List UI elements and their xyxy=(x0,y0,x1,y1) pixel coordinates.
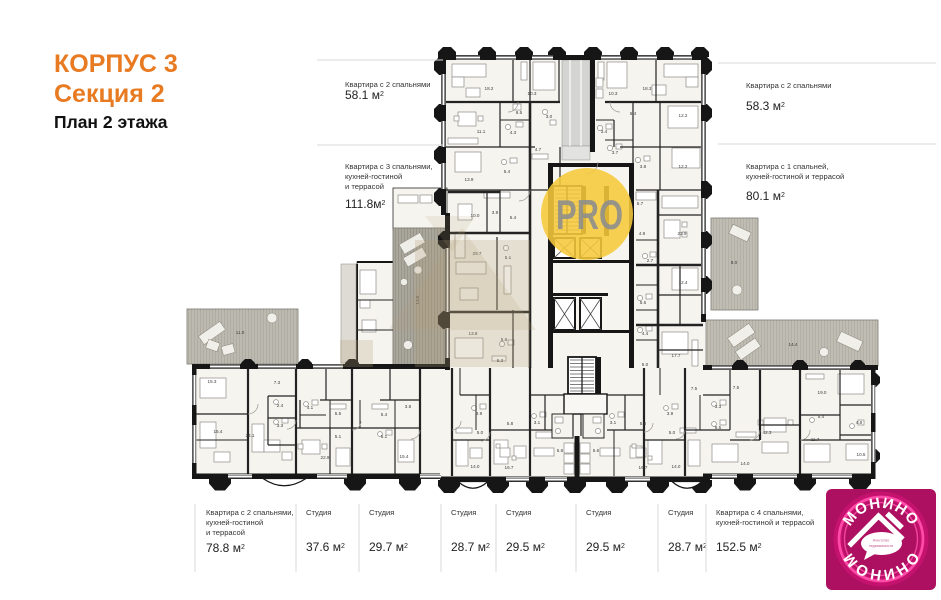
svg-text:80.1 м2: 80.1 м2 xyxy=(746,189,785,203)
svg-text:кухней-гостиной и террасой: кухней-гостиной и террасой xyxy=(716,518,814,527)
svg-text:5.8: 5.8 xyxy=(640,421,647,426)
svg-text:3.1: 3.1 xyxy=(534,420,541,425)
svg-text:5.0: 5.0 xyxy=(477,430,484,435)
svg-text:15.3: 15.3 xyxy=(208,379,217,384)
svg-text:и террасой: и террасой xyxy=(206,528,245,537)
svg-text:5.1: 5.1 xyxy=(335,434,342,439)
svg-text:недвижимости: недвижимости xyxy=(869,544,893,548)
svg-text:78.8 м2: 78.8 м2 xyxy=(206,541,245,555)
svg-text:17.7: 17.7 xyxy=(672,353,681,358)
svg-text:14.0: 14.0 xyxy=(672,464,681,469)
svg-text:Студия: Студия xyxy=(306,508,331,517)
svg-text:5.1: 5.1 xyxy=(381,434,388,439)
svg-text:Студия: Студия xyxy=(451,508,476,517)
svg-text:14.4: 14.4 xyxy=(789,342,798,347)
svg-text:4.8: 4.8 xyxy=(856,420,863,425)
svg-text:5.4: 5.4 xyxy=(510,215,517,220)
svg-text:6.5: 6.5 xyxy=(715,425,722,430)
svg-text:3.7: 3.7 xyxy=(612,150,619,155)
svg-text:10.3: 10.3 xyxy=(528,91,537,96)
svg-text:29.7 м2: 29.7 м2 xyxy=(369,540,408,554)
svg-text:14.0: 14.0 xyxy=(741,461,750,466)
svg-text:Студия: Студия xyxy=(506,508,531,517)
svg-text:3.8: 3.8 xyxy=(640,164,647,169)
svg-text:37.6 м2: 37.6 м2 xyxy=(306,540,345,554)
svg-text:10.5: 10.5 xyxy=(857,452,866,457)
svg-text:5.0: 5.0 xyxy=(642,362,649,367)
svg-text:42.3: 42.3 xyxy=(763,430,772,435)
svg-text:28.7 м2: 28.7 м2 xyxy=(668,540,707,554)
svg-text:и террасой: и террасой xyxy=(345,182,384,191)
svg-text:5.6: 5.6 xyxy=(640,300,647,305)
svg-text:15.4: 15.4 xyxy=(214,429,223,434)
svg-text:12.4: 12.4 xyxy=(679,280,688,285)
svg-text:5.5: 5.5 xyxy=(335,411,342,416)
svg-text:3.0: 3.0 xyxy=(546,114,553,119)
svg-text:кухней-гостиной: кухней-гостиной xyxy=(206,518,263,527)
svg-text:16.7: 16.7 xyxy=(639,465,648,470)
svg-text:4.8: 4.8 xyxy=(639,231,646,236)
svg-text:6.4: 6.4 xyxy=(630,111,637,116)
svg-text:кухней-гостиной и террасой: кухней-гостиной и террасой xyxy=(746,172,844,181)
svg-text:3.3: 3.3 xyxy=(277,423,284,428)
svg-text:5.6: 5.6 xyxy=(593,448,600,453)
svg-text:5.6: 5.6 xyxy=(557,448,564,453)
svg-text:Агентство: Агентство xyxy=(873,539,890,543)
svg-text:22.9: 22.9 xyxy=(321,455,330,460)
svg-text:5.7: 5.7 xyxy=(637,201,644,206)
svg-text:152.5 м2: 152.5 м2 xyxy=(716,540,762,554)
svg-text:28.7 м2: 28.7 м2 xyxy=(451,540,490,554)
svg-text:Квартира с 4 спальнями,: Квартира с 4 спальнями, xyxy=(716,508,804,517)
svg-text:14.0: 14.0 xyxy=(471,464,480,469)
svg-text:5.4: 5.4 xyxy=(818,414,825,419)
svg-text:2.7: 2.7 xyxy=(647,258,654,263)
svg-text:10.3: 10.3 xyxy=(609,91,618,96)
svg-text:18.3: 18.3 xyxy=(643,86,652,91)
svg-text:5.4: 5.4 xyxy=(381,412,388,417)
svg-text:Квартира с 1 спальней,: Квартира с 1 спальней, xyxy=(746,162,828,171)
svg-text:29.5 м2: 29.5 м2 xyxy=(506,540,545,554)
svg-text:Квартира с 2 спальнями: Квартира с 2 спальнями xyxy=(746,81,831,90)
svg-text:3.9: 3.9 xyxy=(492,210,499,215)
svg-text:29.5 м2: 29.5 м2 xyxy=(586,540,625,554)
svg-text:3.9: 3.9 xyxy=(667,411,674,416)
svg-text:4.3: 4.3 xyxy=(510,130,517,135)
svg-text:Квартира с 2 спальнями,: Квартира с 2 спальнями, xyxy=(206,508,294,517)
svg-text:3.1: 3.1 xyxy=(610,420,617,425)
svg-text:58.1 м2: 58.1 м2 xyxy=(345,88,384,102)
svg-text:12.2: 12.2 xyxy=(679,164,688,169)
svg-text:111.8м2: 111.8м2 xyxy=(345,197,386,211)
svg-text:15.4: 15.4 xyxy=(400,454,409,459)
svg-text:КОРПУС 3: КОРПУС 3 xyxy=(54,50,178,78)
svg-text:19.0: 19.0 xyxy=(818,390,827,395)
svg-text:2.4: 2.4 xyxy=(277,403,284,408)
svg-text:3.8: 3.8 xyxy=(405,404,412,409)
svg-text:План 2 этажа: План 2 этажа xyxy=(54,112,168,132)
svg-text:7.5: 7.5 xyxy=(691,386,698,391)
svg-text:Студия: Студия xyxy=(369,508,394,517)
svg-text:Секция 2: Секция 2 xyxy=(54,80,165,108)
svg-text:12.2: 12.2 xyxy=(679,113,688,118)
svg-text:3.9: 3.9 xyxy=(476,411,483,416)
svg-text:11.7: 11.7 xyxy=(811,437,820,442)
svg-text:24.1: 24.1 xyxy=(246,433,255,438)
svg-text:Студия: Студия xyxy=(668,508,693,517)
svg-text:58.3 м2: 58.3 м2 xyxy=(746,99,785,113)
svg-text:3.3: 3.3 xyxy=(715,404,722,409)
svg-text:8.0: 8.0 xyxy=(731,260,738,265)
svg-text:Квартира с 3 спальнями,: Квартира с 3 спальнями, xyxy=(345,162,433,171)
svg-text:4.7: 4.7 xyxy=(535,147,542,152)
svg-text:4.4: 4.4 xyxy=(642,331,649,336)
svg-text:18.2: 18.2 xyxy=(485,86,494,91)
svg-text:16.7: 16.7 xyxy=(505,465,514,470)
svg-text:7.5: 7.5 xyxy=(733,385,740,390)
svg-text:Студия: Студия xyxy=(586,508,611,517)
svg-text:11.1: 11.1 xyxy=(477,129,486,134)
svg-text:3.4: 3.4 xyxy=(601,129,608,134)
svg-text:13.9: 13.9 xyxy=(465,177,474,182)
svg-text:23.9: 23.9 xyxy=(678,231,687,236)
svg-text:кухней-гостиной: кухней-гостиной xyxy=(345,172,402,181)
svg-text:PRO: PRO xyxy=(556,191,623,238)
svg-text:6.5: 6.5 xyxy=(516,110,523,115)
svg-text:5.8: 5.8 xyxy=(507,421,514,426)
svg-text:11.0: 11.0 xyxy=(236,330,245,335)
svg-text:5.4: 5.4 xyxy=(504,169,511,174)
svg-text:5.0: 5.0 xyxy=(669,430,676,435)
svg-text:4.1: 4.1 xyxy=(307,405,314,410)
svg-text:7.3: 7.3 xyxy=(274,380,281,385)
